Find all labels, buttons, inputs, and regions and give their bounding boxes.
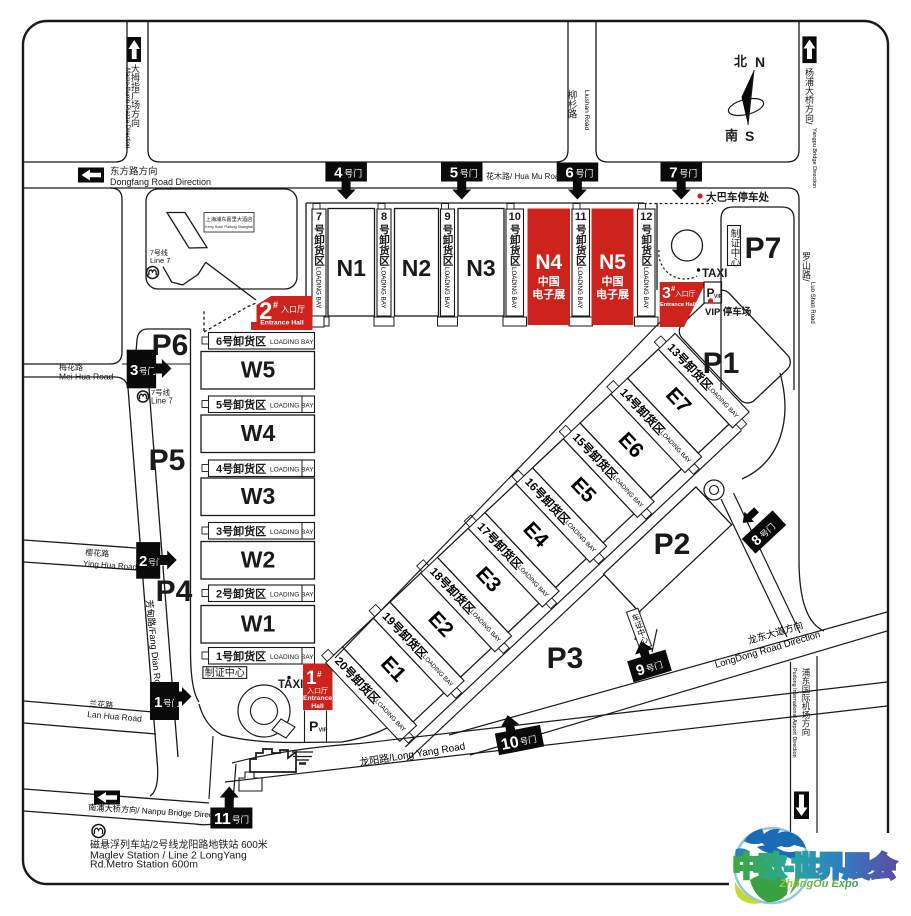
svg-text:9: 9 xyxy=(444,211,450,223)
svg-text:电子展: 电子展 xyxy=(532,287,566,301)
svg-text:VIP: VIP xyxy=(319,728,328,734)
svg-text:6: 6 xyxy=(565,165,573,182)
svg-text:入口厅: 入口厅 xyxy=(307,687,328,695)
svg-text:Line 7: Line 7 xyxy=(150,256,170,265)
svg-text:Dongfang Road Direction: Dongfang Road Direction xyxy=(110,177,211,187)
svg-text:LOADING BAY: LOADING BAY xyxy=(270,467,314,474)
svg-text:11: 11 xyxy=(575,211,587,223)
svg-text:10: 10 xyxy=(500,734,521,754)
svg-text:#: # xyxy=(273,300,278,310)
svg-text:号门: 号门 xyxy=(232,815,249,825)
svg-text:樱花路: 樱花路 xyxy=(85,547,110,559)
svg-text:兰花路: 兰花路 xyxy=(89,698,114,710)
svg-text:W4: W4 xyxy=(241,420,276,446)
svg-text:Hall: Hall xyxy=(311,703,324,710)
svg-text:6号卸货区: 6号卸货区 xyxy=(216,334,266,348)
svg-text:北: 北 xyxy=(734,54,747,69)
svg-text:花木路/ Hua Mu Road: 花木路/ Hua Mu Road xyxy=(486,171,564,181)
svg-text:LOADING BAY: LOADING BAY xyxy=(270,403,314,410)
svg-text:Pudong International Airport D: Pudong International Airport Direction xyxy=(791,668,797,758)
svg-text:N3: N3 xyxy=(466,255,495,281)
svg-text:LOADING BAY: LOADING BAY xyxy=(576,267,583,309)
svg-text:#: # xyxy=(317,670,322,679)
svg-text:号卸货区: 号卸货区 xyxy=(575,224,587,266)
svg-text:Mei Hua Road: Mei Hua Road xyxy=(59,372,114,382)
svg-text:7: 7 xyxy=(316,211,322,223)
svg-text:5: 5 xyxy=(450,165,458,182)
svg-text:7: 7 xyxy=(669,165,677,182)
svg-text:Luo Shan Road: Luo Shan Road xyxy=(809,282,815,324)
svg-text:S: S xyxy=(745,128,754,144)
svg-text:罗山路/: 罗山路/ xyxy=(801,252,811,282)
svg-text:Entrance Hall: Entrance Hall xyxy=(660,302,696,308)
svg-text:中国: 中国 xyxy=(538,274,560,288)
svg-text:ZhongOu Expo: ZhongOu Expo xyxy=(779,878,859,890)
svg-text:P5: P5 xyxy=(149,444,186,477)
svg-text:号门: 号门 xyxy=(679,168,697,179)
svg-text:W5: W5 xyxy=(241,357,276,383)
svg-text:大拇指广场方向: 大拇指广场方向 xyxy=(130,63,140,127)
svg-text:南: 南 xyxy=(725,128,738,143)
svg-text:1号卸货区: 1号卸货区 xyxy=(216,649,266,663)
svg-text:N5: N5 xyxy=(599,251,626,274)
svg-text:号门: 号门 xyxy=(575,168,593,179)
svg-text:N: N xyxy=(755,54,765,70)
svg-text:Yangpu Bridge Direction: Yangpu Bridge Direction xyxy=(811,128,817,188)
svg-text:号卸货区: 号卸货区 xyxy=(313,224,325,266)
svg-text:12: 12 xyxy=(640,211,652,223)
svg-text:10: 10 xyxy=(509,211,521,223)
svg-text:Kerry Hotel Pudong Shanghai: Kerry Hotel Pudong Shanghai xyxy=(205,225,253,229)
svg-text:号卸货区: 号卸货区 xyxy=(378,224,390,266)
svg-text:LOADING BAY: LOADING BAY xyxy=(380,267,387,309)
svg-text:4号卸货区: 4号卸货区 xyxy=(216,462,266,476)
svg-text:P3: P3 xyxy=(547,642,584,675)
svg-text:Line 7: Line 7 xyxy=(151,397,173,406)
svg-text:中国: 中国 xyxy=(602,274,624,288)
svg-text:TAXI: TAXI xyxy=(278,679,303,691)
svg-text:7号线: 7号线 xyxy=(151,387,171,397)
svg-text:号卸货区: 号卸货区 xyxy=(442,224,454,266)
svg-text:LOADING BAY: LOADING BAY xyxy=(443,267,450,309)
svg-text:LOADING BAY: LOADING BAY xyxy=(315,267,322,309)
svg-text:2: 2 xyxy=(139,553,147,570)
svg-text:LOADING BAY: LOADING BAY xyxy=(270,339,314,346)
svg-text:制证中心: 制证中心 xyxy=(729,228,741,267)
svg-text:号门: 号门 xyxy=(460,168,478,179)
svg-text:LOADING BAY: LOADING BAY xyxy=(270,654,314,661)
svg-text:LOADING BAY: LOADING BAY xyxy=(270,592,314,599)
svg-text:5号卸货区: 5号卸货区 xyxy=(216,398,266,412)
svg-text:N2: N2 xyxy=(402,255,431,281)
svg-text:Entrance: Entrance xyxy=(303,695,332,702)
svg-text:Rd.Metro Station 600m: Rd.Metro Station 600m xyxy=(90,859,198,871)
svg-text:LOADING BAY: LOADING BAY xyxy=(642,267,649,309)
svg-text:入口厅: 入口厅 xyxy=(675,290,696,298)
svg-text:Entrance Hall: Entrance Hall xyxy=(260,320,304,327)
svg-text:8: 8 xyxy=(381,211,387,223)
svg-text:Liushan Road: Liushan Road xyxy=(583,90,590,130)
svg-text:电子展: 电子展 xyxy=(596,287,630,301)
svg-text:号门: 号门 xyxy=(344,168,362,179)
svg-text:上海浦东嘉里大酒店: 上海浦东嘉里大酒店 xyxy=(206,215,253,223)
svg-text:W2: W2 xyxy=(241,547,276,573)
svg-text:N4: N4 xyxy=(535,251,562,274)
svg-text:W1: W1 xyxy=(241,611,276,637)
svg-text:Macro-thumb Piazza Direction: Macro-thumb Piazza Direction xyxy=(124,68,130,148)
svg-text:P7: P7 xyxy=(745,232,782,265)
svg-text:N1: N1 xyxy=(337,255,367,281)
svg-text:W3: W3 xyxy=(241,483,276,509)
svg-text:LOADING BAY: LOADING BAY xyxy=(510,267,517,309)
svg-text:3号卸货区: 3号卸货区 xyxy=(216,524,266,538)
svg-text:P: P xyxy=(309,718,318,734)
svg-text:浦东国际机场方向: 浦东国际机场方向 xyxy=(801,667,811,736)
svg-text:1: 1 xyxy=(306,668,317,689)
svg-text:TAXI: TAXI xyxy=(702,268,727,280)
svg-text:P6: P6 xyxy=(152,329,189,362)
svg-text:1: 1 xyxy=(154,694,162,711)
svg-text:大巴车停车处: 大巴车停车处 xyxy=(706,191,769,204)
svg-text:号卸货区: 号卸货区 xyxy=(509,224,521,266)
svg-text:号门: 号门 xyxy=(139,366,156,376)
svg-text:3: 3 xyxy=(130,362,138,379)
svg-text:2号卸货区: 2号卸货区 xyxy=(216,587,266,601)
svg-text:东方路方向: 东方路方向 xyxy=(110,166,158,178)
svg-text:P4: P4 xyxy=(156,575,193,608)
svg-text:梅花路: 梅花路 xyxy=(59,362,83,372)
svg-text:3: 3 xyxy=(662,285,671,302)
svg-text:VIP 停车场: VIP 停车场 xyxy=(705,306,752,318)
svg-text:杨浦大桥方向/: 杨浦大桥方向/ xyxy=(804,67,814,125)
svg-text:LOADING BAY: LOADING BAY xyxy=(270,529,314,536)
svg-text:号卸货区: 号卸货区 xyxy=(640,224,652,266)
svg-text:11: 11 xyxy=(214,811,231,828)
svg-text:柳杉路: 柳杉路 xyxy=(566,89,578,119)
svg-text:P2: P2 xyxy=(654,528,691,561)
svg-text:4: 4 xyxy=(334,165,343,182)
svg-text:制证中心: 制证中心 xyxy=(205,666,245,679)
svg-text:入口厅: 入口厅 xyxy=(281,305,305,314)
